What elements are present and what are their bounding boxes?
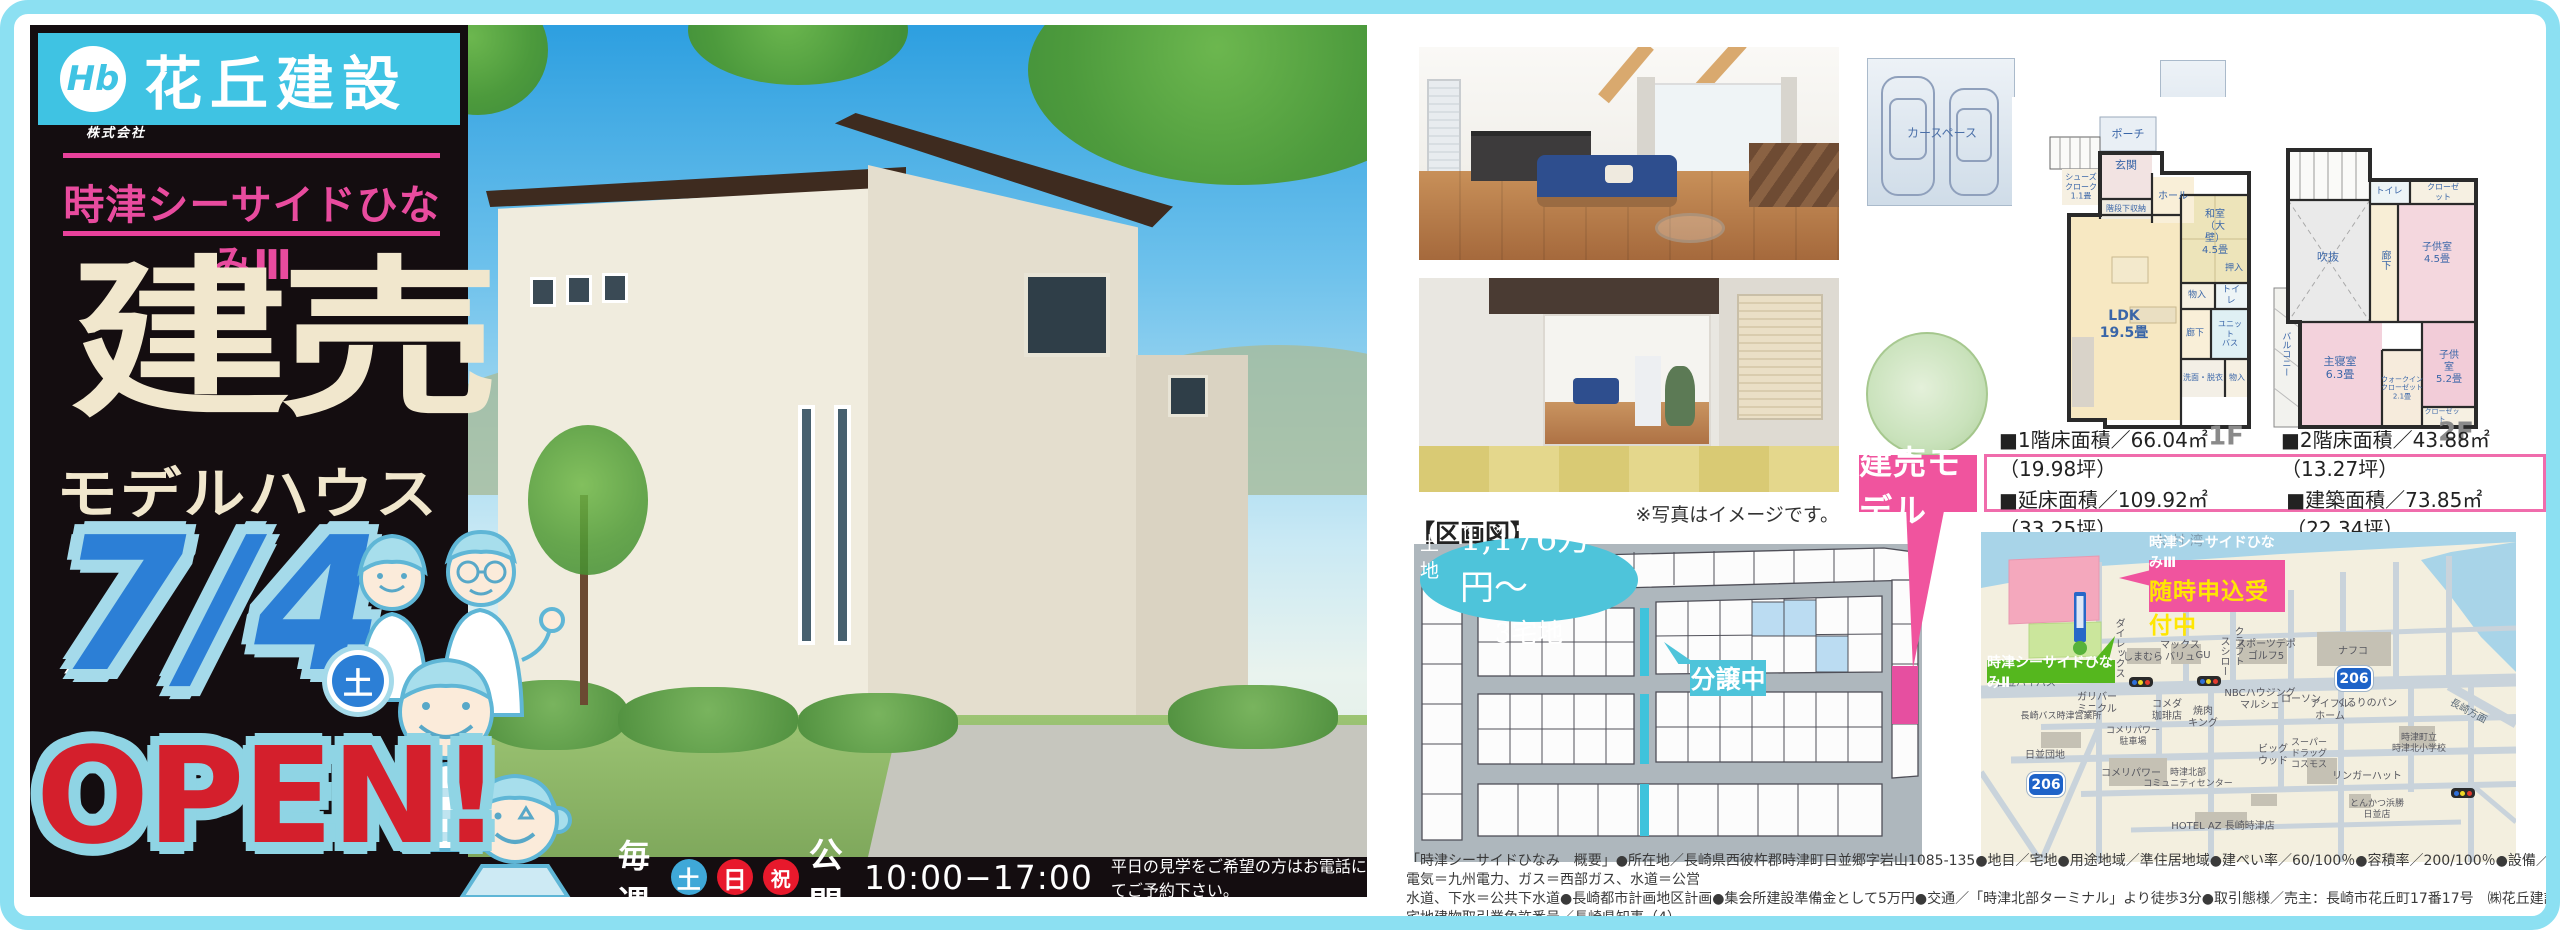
map-headline: 時津シーサイドひなみⅢ — [2149, 532, 2285, 572]
tree-canopy — [688, 25, 908, 85]
poi-ringerhut: リンガーハット — [2332, 771, 2402, 783]
poi-community-center: 時津北部 コミュニティセンター — [2143, 768, 2232, 790]
status-tag: 分譲中 — [1690, 660, 1766, 696]
room-closet-1: クローゼット — [2426, 182, 2461, 201]
map-sub-headline: 随時申込受付中 — [2149, 572, 2285, 640]
interior-photo-tatami — [1419, 278, 1839, 492]
company-type: 株式会社 — [70, 122, 162, 141]
divider — [63, 153, 440, 158]
poi-shimamura: しまむら — [2123, 652, 2163, 664]
room-master: 主寝室 6.3畳 — [2324, 355, 2357, 381]
poi-hamakatsu: とんかつ浜勝 日並店 — [2350, 799, 2404, 821]
room-hallway-1f: 廊下 — [2186, 329, 2204, 340]
schedule-every: 毎週 — [618, 831, 661, 923]
house-rendering — [468, 25, 1367, 857]
photo-blind — [1737, 294, 1823, 420]
photo-opening — [1543, 314, 1711, 446]
schedule-open-label: 公開 — [809, 828, 854, 926]
photo-coffee-table — [1655, 213, 1725, 243]
room-washroom: 洗面・脱衣 — [2183, 373, 2223, 383]
route-shield-206: 206 — [2027, 772, 2065, 797]
room-oshiire: 押入 — [2225, 264, 2243, 275]
room-hall: ホール — [2158, 191, 2188, 203]
car-space-left-label: カースペース — [1907, 126, 1977, 140]
tree-canopy — [1028, 25, 1367, 185]
traffic-light-icon — [2197, 676, 2221, 686]
poi-komeri-parking: コメリパワー 駐車場 — [2106, 726, 2160, 748]
room-kids-2: 子供室 5.2畳 — [2435, 350, 2464, 386]
shrub — [618, 687, 798, 753]
shrub — [1168, 685, 1338, 749]
poi-gu: GU — [2195, 650, 2210, 662]
land-price-badge: 土地 1,176万円〜 3宅地 — [1420, 538, 1638, 622]
day-sat-badge: 土 — [671, 859, 707, 895]
poi-yakiniku: 焼肉 キング — [2188, 706, 2218, 730]
model-tag: 建売モデル — [1859, 455, 1977, 512]
floor-plan-1f: ポーチ 玄関 シューズ クローク 1.1畳 階段下収納 ホール 和室（大壁） 4… — [2012, 97, 2254, 447]
traffic-light-icon — [2451, 788, 2475, 798]
poi-bigwood: ビッグ ウッド — [2258, 744, 2288, 768]
floor-plan-2f: 吹抜 廊下 トイレ クローゼット 子供室 4.5畳 子供室 5.2畳 主寝室 6… — [2270, 92, 2478, 437]
photo-caption: ※写真はイメージです。 — [1611, 500, 1839, 527]
open-text: OPEN! — [36, 731, 499, 864]
window — [530, 277, 556, 307]
photo-plant — [1665, 366, 1695, 426]
room-washitsu: 和室（大壁） 4.5畳 — [2196, 209, 2235, 257]
legal-line-2: 水道、下水＝公共下水道●長崎都市計画地区計画●集会所建設準備金として5万円●交通… — [1406, 890, 2558, 928]
legal-notes: 「時津シーサイドひなみ 概要」●所在地／長崎県西彼杵郡時津町日並郷字岩山1085… — [1406, 852, 2558, 930]
lots-count: 3宅地 — [1495, 613, 1564, 650]
map-phase2-box: 時津シーサイドひなみⅡ — [1987, 660, 2115, 683]
traffic-light-icon — [2129, 677, 2153, 687]
room-wic: ウォークイン クローゼット 2.1畳 — [2381, 375, 2423, 400]
room-porch: ポーチ — [2112, 127, 2145, 140]
schedule-bar: 毎週 土 日 祝 公開 10:00−17:00 平日の見学をご希望の方はお電話に… — [468, 857, 1367, 897]
room-entrance: 玄関 — [2115, 158, 2137, 171]
poi-sportsdepo: スポーツデポ ゴルフ5 — [2236, 639, 2296, 663]
poi-kururi: くるりのパン — [2337, 698, 2397, 710]
floor-area-box: ■1階床面積／66.04㎡（19.98坪） ■2階床面積／43.88㎡（13.2… — [1984, 454, 2546, 512]
shrub — [798, 693, 958, 753]
room-storage-2: 物入 — [2229, 373, 2245, 383]
window — [566, 275, 592, 305]
room-void: 吹抜 — [2317, 250, 2339, 263]
photo-tatami-floor — [1419, 446, 1839, 492]
area-2f: ■2階床面積／43.88㎡（13.27坪） — [2281, 424, 2543, 482]
interior-photo-living — [1419, 47, 1839, 260]
room-under-stairs: 階段下収納 — [2106, 204, 2146, 214]
day-holiday-badge: 祝 — [763, 859, 799, 895]
room-kids-1: 子供室 4.5畳 — [2422, 242, 2452, 266]
map-headline-box: 時津シーサイドひなみⅢ 随時申込受付中 — [2149, 560, 2285, 612]
price-value: 1,176万円〜 — [1460, 511, 1638, 609]
price-prefix: 土地 — [1420, 529, 1454, 583]
photo-distant-window — [1635, 356, 1661, 426]
room-toilet-1f: トイレ — [2220, 285, 2243, 307]
poi-cosmos: スーパー ドラッグ コスモス — [2291, 738, 2327, 770]
ad-panel: 毎週 土 日 祝 公開 10:00−17:00 平日の見学をご希望の方はお電話に… — [30, 25, 1367, 897]
slit-window — [834, 405, 851, 645]
room-shoes-closet: シューズ クローク 1.1畳 — [2065, 173, 2097, 202]
logo-glyph: Hb — [67, 59, 120, 99]
room-storage-1: 物入 — [2188, 291, 2206, 302]
poi-bus-office: 長崎バス時津営業所 — [2020, 712, 2101, 723]
flyer-canvas: 毎週 土 日 祝 公開 10:00−17:00 平日の見学をご希望の方はお電話に… — [0, 0, 2560, 930]
schedule-note: 平日の見学をご希望の方はお電話にてご予約下さい。 — [1111, 853, 1367, 901]
window — [602, 273, 628, 303]
photo-stairs — [1749, 143, 1839, 207]
legal-line-1: 「時津シーサイドひなみ 概要」●所在地／長崎県西彼杵郡時津町日並郷字岩山1085… — [1406, 852, 2558, 890]
access-map: 大村湾 時津シーサイドひなみⅢ 随時申込受付中 時津シーサイドひなみⅡ 206 … — [1981, 532, 2516, 862]
window — [1024, 273, 1110, 357]
car-space-sketch: カースペース — [1867, 58, 2015, 206]
company-name: 花丘建設 — [144, 37, 408, 121]
open-date-day-badge: 土 — [332, 655, 384, 707]
area-1f: ■1階床面積／66.04㎡（19.98坪） — [1999, 424, 2261, 482]
day-sun-badge: 日 — [717, 859, 753, 895]
photo-distant-sofa — [1573, 378, 1619, 404]
divider — [63, 231, 440, 236]
poi-maxvalu: マックス バリュ — [2160, 640, 2200, 664]
poi-hotel-az: HOTEL AZ 長崎時津店 — [2171, 821, 2274, 833]
company-logo-icon: Hb 株式会社 — [60, 46, 126, 112]
wall-right — [868, 165, 1138, 732]
tree-canopy — [468, 25, 548, 115]
poi-hinami-danchi: 日並団地 — [2025, 750, 2065, 762]
photo-cushion — [1605, 165, 1633, 183]
window — [1168, 375, 1208, 417]
schedule-hours: 10:00−17:00 — [864, 858, 1093, 897]
room-hallway-2f: 廊下 — [2378, 250, 2390, 270]
slit-window — [798, 405, 815, 645]
poi-sushiro: スシロー — [2217, 636, 2229, 676]
room-ldk: LDK 19.5畳 — [2100, 308, 2149, 342]
room-toilet-2f: トイレ — [2375, 187, 2402, 198]
poi-school: 時津町立 時津北小学校 — [2392, 733, 2446, 755]
poi-komeda: コメダ 珈琲店 — [2152, 699, 2182, 723]
poi-nafco: ナフコ — [2338, 646, 2368, 658]
room-balcony: バルコニー — [2280, 332, 2291, 377]
route-shield-206: 206 — [2335, 666, 2373, 691]
room-unit-bath: ユニット バス — [2218, 320, 2242, 349]
main-title: 建売 — [70, 251, 490, 432]
logo-box: Hb 株式会社 花丘建設 — [38, 33, 460, 125]
